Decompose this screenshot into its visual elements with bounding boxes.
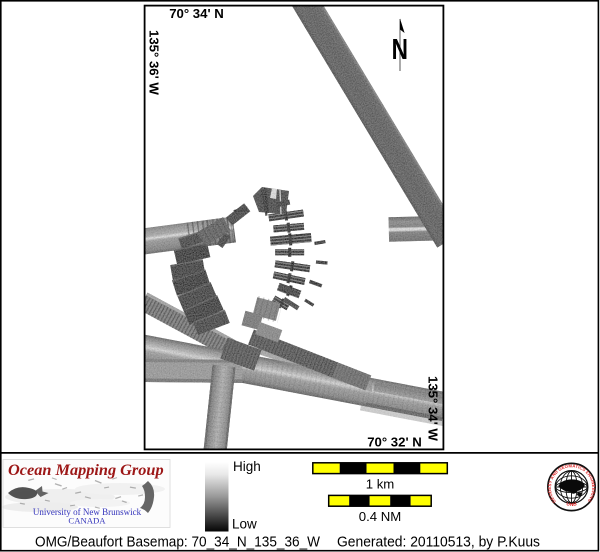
- svg-text:Ocean Mapping Group: Ocean Mapping Group: [8, 460, 164, 479]
- svg-text:70° 32' N: 70° 32' N: [367, 435, 422, 450]
- svg-text:135° 34' W: 135° 34' W: [426, 376, 441, 441]
- svg-text:Low: Low: [232, 516, 257, 531]
- svg-text:70° 34' N: 70° 34' N: [169, 6, 224, 21]
- svg-text:N: N: [392, 32, 408, 65]
- svg-text:CANADA: CANADA: [68, 515, 106, 525]
- svg-text:0.4 NM: 0.4 NM: [359, 509, 402, 524]
- svg-text:OMG/Beaufort Basemap: 70_34_N_: OMG/Beaufort Basemap: 70_34_N_135_36_W: [35, 535, 320, 551]
- svg-text:Generated: 20110513, by P.Kuus: Generated: 20110513, by P.Kuus: [337, 535, 540, 551]
- svg-text:1 km: 1 km: [366, 477, 395, 492]
- svg-text:High: High: [233, 459, 261, 474]
- svg-text:135° 36' W: 135° 36' W: [147, 30, 162, 95]
